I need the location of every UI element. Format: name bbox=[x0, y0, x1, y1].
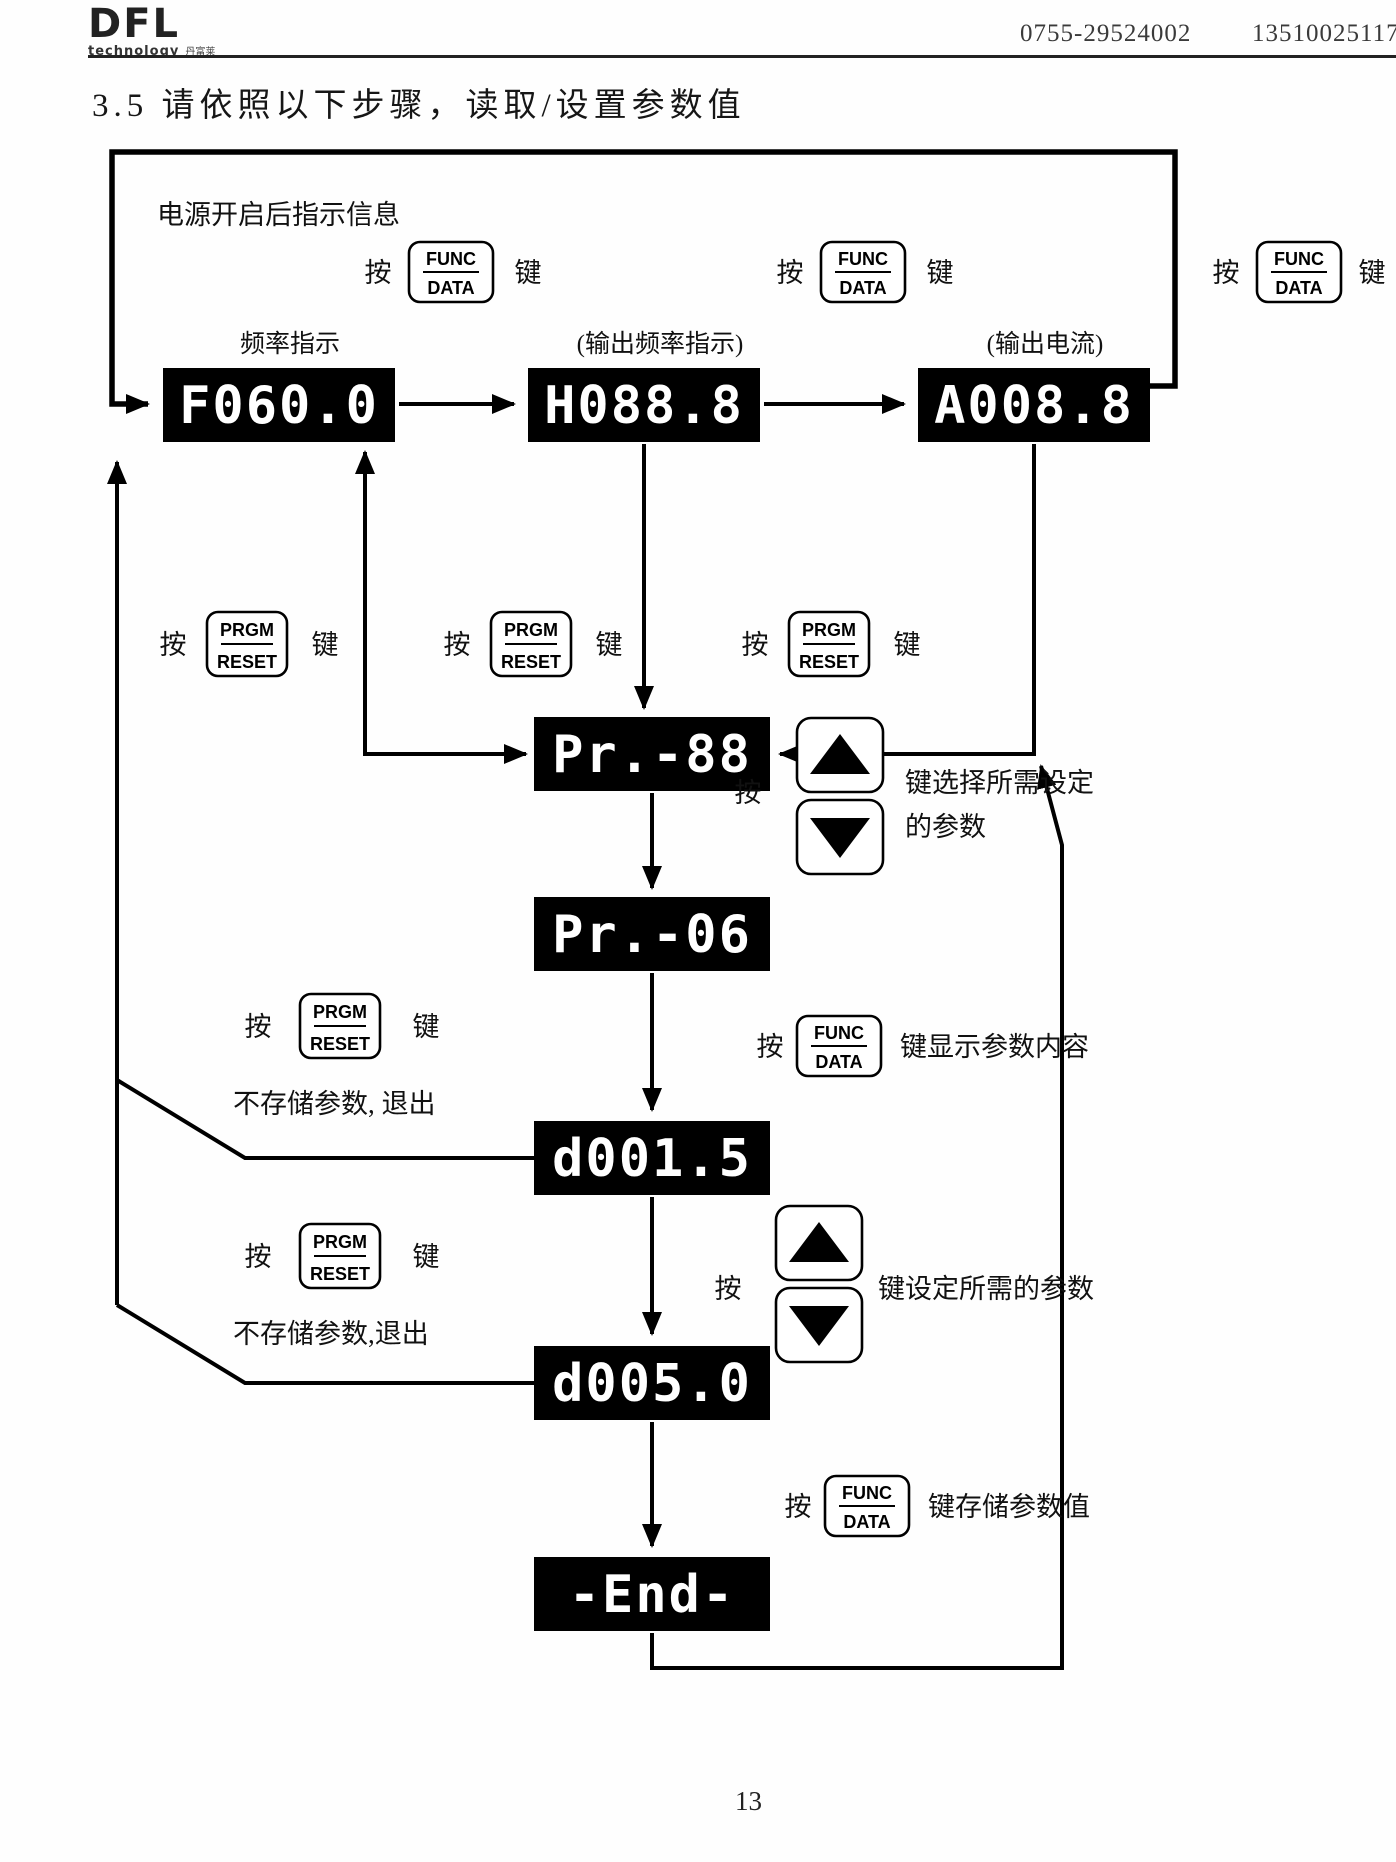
press-label: 按 bbox=[444, 630, 471, 660]
display-end: -End- bbox=[534, 1557, 770, 1631]
press-label: 按 bbox=[757, 1032, 784, 1062]
reset-label: RESET bbox=[217, 652, 277, 672]
press-label: 按 bbox=[785, 1492, 812, 1522]
manual-page: DFL technology丹富莱 0755-29524002 13510025… bbox=[0, 0, 1396, 1862]
key-label: 键 bbox=[312, 630, 339, 660]
key-label: 键 bbox=[596, 630, 623, 660]
no-save-exit-note-2: 不存储参数,退出 bbox=[233, 1319, 429, 1349]
key-label: 键 bbox=[894, 630, 921, 660]
func-data-key-4: 按 FUNC DATA 键显示参数内容 bbox=[757, 1016, 1090, 1076]
press-label: 按 bbox=[245, 1242, 272, 1272]
reset-label: RESET bbox=[501, 652, 561, 672]
parameter-flow-diagram: 电源开启后指示信息 频率指示 F060.0 (输出频率指示) bbox=[0, 0, 1396, 1862]
select-param-note-line2: 的参数 bbox=[905, 812, 986, 842]
prgm-reset-key-4: 按 PRGM RESET 键 不存储参数, 退出 bbox=[233, 994, 440, 1119]
loop-line-power-on bbox=[112, 152, 1175, 404]
select-param-note-line1: 键选择所需设定 bbox=[905, 768, 1094, 798]
power-on-note: 电源开启后指示信息 bbox=[157, 200, 400, 230]
prgm-label: PRGM bbox=[220, 620, 274, 640]
press-label: 按 bbox=[777, 258, 804, 288]
no-save-exit-note-1: 不存储参数, 退出 bbox=[233, 1089, 436, 1119]
display-param-content: d001.5 bbox=[534, 1121, 770, 1195]
key-label: 键 bbox=[515, 258, 542, 288]
prgm-label: PRGM bbox=[313, 1232, 367, 1252]
func-label: FUNC bbox=[838, 249, 888, 269]
data-label: DATA bbox=[815, 1052, 862, 1072]
reset-label: RESET bbox=[799, 652, 859, 672]
display-output-current-value: A008.8 bbox=[934, 376, 1134, 436]
prgm-reset-key-2: 按 PRGM RESET 键 bbox=[444, 612, 623, 676]
display-param-group-value: Pr.-88 bbox=[552, 725, 752, 785]
display-param-new-value-value: d005.0 bbox=[552, 1354, 752, 1414]
data-label: DATA bbox=[427, 278, 474, 298]
data-label: DATA bbox=[839, 278, 886, 298]
arrow-current-to-prgroup bbox=[780, 444, 1034, 754]
display-output-current: (输出电流) A008.8 bbox=[918, 330, 1150, 442]
func-data-key-3: 按 FUNC DATA 键 bbox=[1213, 242, 1386, 302]
display-end-value: -End- bbox=[569, 1565, 736, 1625]
press-label: 按 bbox=[365, 258, 392, 288]
display-freq-value: F060.0 bbox=[179, 376, 379, 436]
key-label: 键 bbox=[413, 1242, 440, 1272]
up-down-keys-1: 按 键选择所需设定 的参数 bbox=[735, 718, 1095, 874]
key-label: 键 bbox=[1359, 258, 1386, 288]
display-freq: 频率指示 F060.0 bbox=[163, 330, 395, 442]
press-label: 按 bbox=[245, 1012, 272, 1042]
display-output-freq: (输出频率指示) H088.8 bbox=[528, 330, 760, 442]
func-data-key-1: 按 FUNC DATA 键 bbox=[365, 242, 542, 302]
key-label: 键 bbox=[927, 258, 954, 288]
prgm-reset-key-5: 按 PRGM RESET 键 不存储参数,退出 bbox=[233, 1224, 440, 1349]
reset-label: RESET bbox=[310, 1264, 370, 1284]
display-output-freq-value: H088.8 bbox=[544, 376, 744, 436]
prgm-label: PRGM bbox=[504, 620, 558, 640]
press-label: 按 bbox=[715, 1274, 742, 1304]
display-output-freq-label: (输出频率指示) bbox=[577, 330, 744, 358]
prgm-reset-key-1: 按 PRGM RESET 键 bbox=[160, 612, 339, 676]
prgm-label: PRGM bbox=[313, 1002, 367, 1022]
press-label: 按 bbox=[742, 630, 769, 660]
key-label: 键 bbox=[413, 1012, 440, 1042]
func-label: FUNC bbox=[814, 1023, 864, 1043]
func-data-key-5: 按 FUNC DATA 键存储参数值 bbox=[785, 1476, 1091, 1536]
display-param-new-value: d005.0 bbox=[534, 1346, 770, 1420]
save-param-note: 键存储参数值 bbox=[928, 1492, 1090, 1522]
up-down-keys-2: 按 键设定所需的参数 bbox=[715, 1206, 1095, 1362]
data-label: DATA bbox=[1275, 278, 1322, 298]
display-freq-label: 频率指示 bbox=[240, 330, 340, 358]
press-label: 按 bbox=[160, 630, 187, 660]
display-param-selected-value: Pr.-06 bbox=[552, 905, 752, 965]
func-label: FUNC bbox=[842, 1483, 892, 1503]
display-param-selected: Pr.-06 bbox=[534, 897, 770, 971]
show-content-note: 键显示参数内容 bbox=[900, 1032, 1089, 1062]
display-param-content-value: d001.5 bbox=[552, 1129, 752, 1189]
reset-label: RESET bbox=[310, 1034, 370, 1054]
prgm-reset-key-3: 按 PRGM RESET 键 bbox=[742, 612, 921, 676]
display-output-current-label: (输出电流) bbox=[987, 330, 1104, 358]
press-label: 按 bbox=[735, 778, 762, 808]
prgm-label: PRGM bbox=[802, 620, 856, 640]
func-data-key-2: 按 FUNC DATA 键 bbox=[777, 242, 954, 302]
data-label: DATA bbox=[843, 1512, 890, 1532]
func-label: FUNC bbox=[1274, 249, 1324, 269]
press-label: 按 bbox=[1213, 258, 1240, 288]
arrow-prgroup-to-freq bbox=[365, 452, 526, 754]
set-param-note: 键设定所需的参数 bbox=[878, 1274, 1094, 1304]
func-label: FUNC bbox=[426, 249, 476, 269]
page-number: 13 bbox=[735, 1786, 762, 1817]
